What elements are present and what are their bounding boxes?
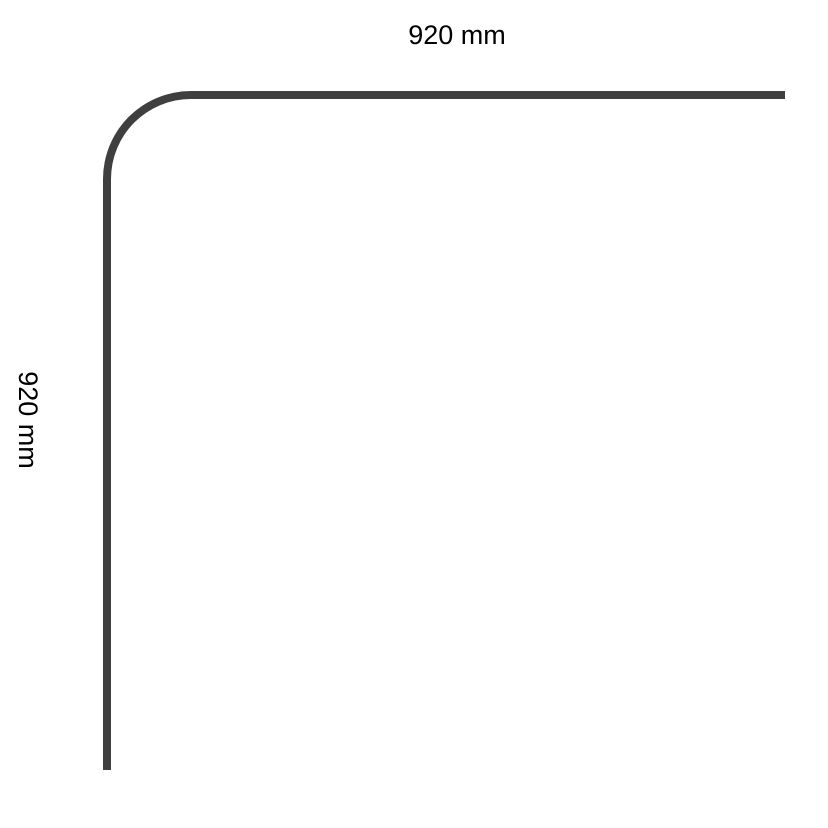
diagram-canvas: 920 mm 920 mm [0,0,828,828]
corner-profile-line [103,91,785,770]
top-dimension-label: 920 mm [377,19,537,51]
left-dimension-label: 920 mm [12,340,44,500]
